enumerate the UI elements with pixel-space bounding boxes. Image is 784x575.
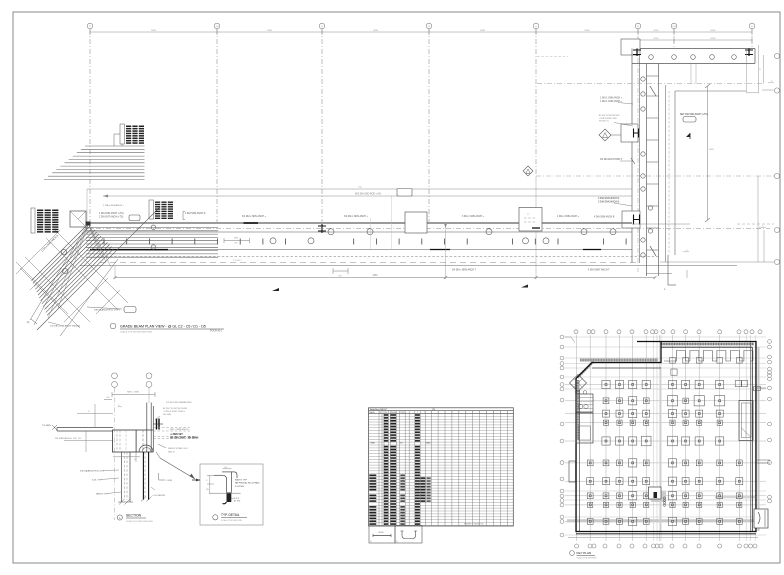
svg-text:NNN: NNN bbox=[585, 30, 590, 32]
svg-text:SCALE NTS NNN NNN: SCALE NTS NNN NNN bbox=[577, 557, 597, 560]
svg-text:NNN: NNN bbox=[267, 30, 272, 32]
svg-text:D1: D1 bbox=[637, 26, 639, 28]
svg-text:C2: C2 bbox=[89, 26, 91, 28]
svg-text:+CNN W SNNT SNN: +CNN W SNNT SNN bbox=[599, 118, 617, 120]
svg-text:1 DIA x NNN ANCH +: 1 DIA x NNN ANCH + bbox=[557, 215, 580, 218]
svg-text:NNN: NNN bbox=[711, 38, 716, 40]
svg-text:NNN: NNN bbox=[379, 532, 384, 534]
svg-text:C-: C- bbox=[370, 541, 372, 543]
svg-text:TYPE: TYPE bbox=[400, 412, 405, 414]
svg-text:NN PNGCA, NC & PNNC: NN PNGCA, NC & PNNC bbox=[235, 482, 260, 485]
svg-text:1/2 SET NN SNNNN NNN: 1/2 SET NN SNNNN NNN bbox=[166, 402, 192, 404]
svg-text:SNN W STEEL W-S: SNN W STEEL W-S bbox=[168, 448, 188, 450]
svg-text:BNN: BNN bbox=[371, 442, 376, 444]
svg-text:SECTION: SECTION bbox=[126, 514, 142, 518]
svg-text:NNN: NNN bbox=[654, 30, 659, 32]
svg-text:3/8 DIA ANCH ROD (TYP): 3/8 DIA ANCH ROD (TYP) bbox=[94, 309, 120, 312]
svg-text:3/4 DIA x NNN ANCH +: 3/4 DIA x NNN ANCH + bbox=[242, 215, 267, 218]
svg-text:3 DIA x NNN ANCH +: 3 DIA x NNN ANCH + bbox=[462, 215, 485, 218]
svg-text:3 DIA SNN ANCH N: 3 DIA SNN ANCH N bbox=[598, 201, 620, 204]
svg-text:2 W SN T: 2 W SN T bbox=[233, 260, 242, 262]
svg-text:S-SL TYP: S-SL TYP bbox=[92, 480, 102, 482]
svg-text:SCALE NTS NNN NNN NNN: SCALE NTS NNN NNN NNN bbox=[126, 520, 153, 523]
svg-text:TYP. DETAIL: TYP. DETAIL bbox=[221, 513, 240, 517]
svg-text:4 DIA SNN ANCH B: 4 DIA SNN ANCH B bbox=[594, 216, 615, 219]
svg-text:+/-N DIA/NNN: +/-N DIA/NNN bbox=[152, 494, 166, 497]
svg-text:C-: C- bbox=[396, 541, 398, 543]
svg-text:AT NNL: AT NNL bbox=[234, 500, 242, 503]
svg-text:1/2 DIA x NNN ANCH THD(N)2: 1/2 DIA x NNN ANCH THD(N)2 bbox=[50, 325, 81, 328]
svg-text:1 DIA x NNN ANCH +: 1 DIA x NNN ANCH + bbox=[103, 204, 125, 207]
svg-text:D5: D5 bbox=[751, 26, 753, 28]
svg-text:NNN: NNN bbox=[709, 149, 714, 151]
svg-text:POUR #1-1: POUR #1-1 bbox=[210, 330, 223, 333]
svg-text:A: A bbox=[119, 516, 121, 520]
svg-text:NNN: NNN bbox=[654, 38, 659, 40]
svg-text:AT SNT W SNTNN SNNN: AT SNT W SNTNN SNNN bbox=[163, 407, 187, 410]
svg-text:2W SNNS ANCH L TSC: 2W SNNS ANCH L TSC bbox=[55, 437, 78, 440]
svg-text:+/-NNN SET: +/-NNN SET bbox=[170, 434, 183, 436]
svg-text:NN SNN SNNT - NN NNNN: NN SNN SNNT - NN NNNN bbox=[170, 438, 199, 440]
svg-text:C4: C4 bbox=[428, 26, 430, 28]
svg-text:SCALE NTS NNN NNN: SCALE NTS NNN NNN bbox=[221, 519, 242, 522]
svg-text:NNN: NNN bbox=[234, 238, 239, 240]
svg-text:2950: 2950 bbox=[372, 275, 378, 277]
svg-text:KEY PLAN: KEY PLAN bbox=[577, 551, 592, 555]
svg-text:T/S NNN: T/S NNN bbox=[42, 425, 51, 427]
svg-text:SNL N: SNL N bbox=[168, 451, 175, 453]
svg-text:NNN: NNN bbox=[480, 30, 485, 32]
svg-text:NNN: NNN bbox=[151, 30, 156, 32]
svg-text:3-GT NN: 3-GT NN bbox=[235, 486, 244, 488]
svg-text:1 DIA SNN ANCH (+TS): 1 DIA SNN ANCH (+TS) bbox=[99, 212, 124, 215]
svg-text:GRADE BEAM PLAN VIEW - @ GL: GRADE BEAM PLAN VIEW - @ GL C2 - C5 / D1… bbox=[120, 325, 206, 329]
svg-text:W/S DIA SNO ROD + NN: W/S DIA SNO ROD + NN bbox=[355, 193, 381, 196]
svg-text:2 DIA SNT ANCH (+TS): 2 DIA SNT ANCH (+TS) bbox=[99, 216, 124, 219]
svg-text:L NNN: L NNN bbox=[166, 480, 173, 482]
svg-text:SN SNL TS: SN SNL TS bbox=[599, 121, 609, 123]
svg-text:3/4 DIA ANCH ROD T: 3/4 DIA ANCH ROD T bbox=[600, 158, 623, 161]
svg-text:NNN N TYP: NNN N TYP bbox=[96, 494, 108, 496]
svg-text:NNN: NNN bbox=[373, 30, 378, 32]
svg-text:NNN: NNN bbox=[711, 30, 716, 32]
svg-text:+CNN W SNNT SNNCL: +CNN W SNNT SNNCL bbox=[163, 411, 186, 413]
svg-text:SN SNN: SN SNN bbox=[163, 414, 171, 416]
svg-text:MARK: MARK bbox=[370, 411, 376, 414]
svg-text:NNN: NNN bbox=[426, 442, 431, 444]
svg-text:2 DIA SNN ANCH D: 2 DIA SNN ANCH D bbox=[185, 212, 206, 215]
svg-text:REINF: REINF bbox=[391, 412, 397, 414]
svg-text:3/4 DIA x NNN ANCH +: 3/4 DIA x NNN ANCH + bbox=[344, 215, 369, 218]
svg-text:4 DIA SNNT ANCH T: 4 DIA SNNT ANCH T bbox=[588, 269, 610, 272]
svg-text:3/4 DIA ANCH ROD (TY): 3/4 DIA ANCH ROD (TY) bbox=[80, 470, 104, 473]
svg-text:C5: C5 bbox=[535, 26, 537, 28]
svg-text:AT SNT W SNTNN NNN: AT SNT W SNTNN NNN bbox=[599, 114, 620, 117]
svg-text:SCALE NTS NN NNN NNN NNN: SCALE NTS NN NNN NNN NNN bbox=[120, 331, 152, 334]
svg-text:(NN + NNN ANCH): (NN + NNN ANCH) bbox=[170, 428, 189, 431]
svg-text:SET DIA SNN ANCH (+TS): SET DIA SNN ANCH (+TS) bbox=[680, 113, 708, 116]
svg-text:C3: C3 bbox=[321, 26, 323, 28]
svg-text:N/A TO TYP: N/A TO TYP bbox=[235, 479, 247, 482]
svg-text:NNN + NNN: NNN + NNN bbox=[127, 392, 139, 394]
svg-text:#N: #N bbox=[432, 409, 435, 411]
svg-text:3/4 DIA x NNN ANCH T: 3/4 DIA x NNN ANCH T bbox=[452, 269, 477, 272]
svg-text:Table/Sect NN ST: Table/Sect NN ST bbox=[370, 408, 388, 411]
svg-text:1 DIA 1 SNN ANCH +: 1 DIA 1 SNN ANCH + bbox=[600, 97, 623, 100]
svg-text:FNNNN @ NNNN NN: FNNNN @ NNNN NN bbox=[464, 523, 484, 525]
